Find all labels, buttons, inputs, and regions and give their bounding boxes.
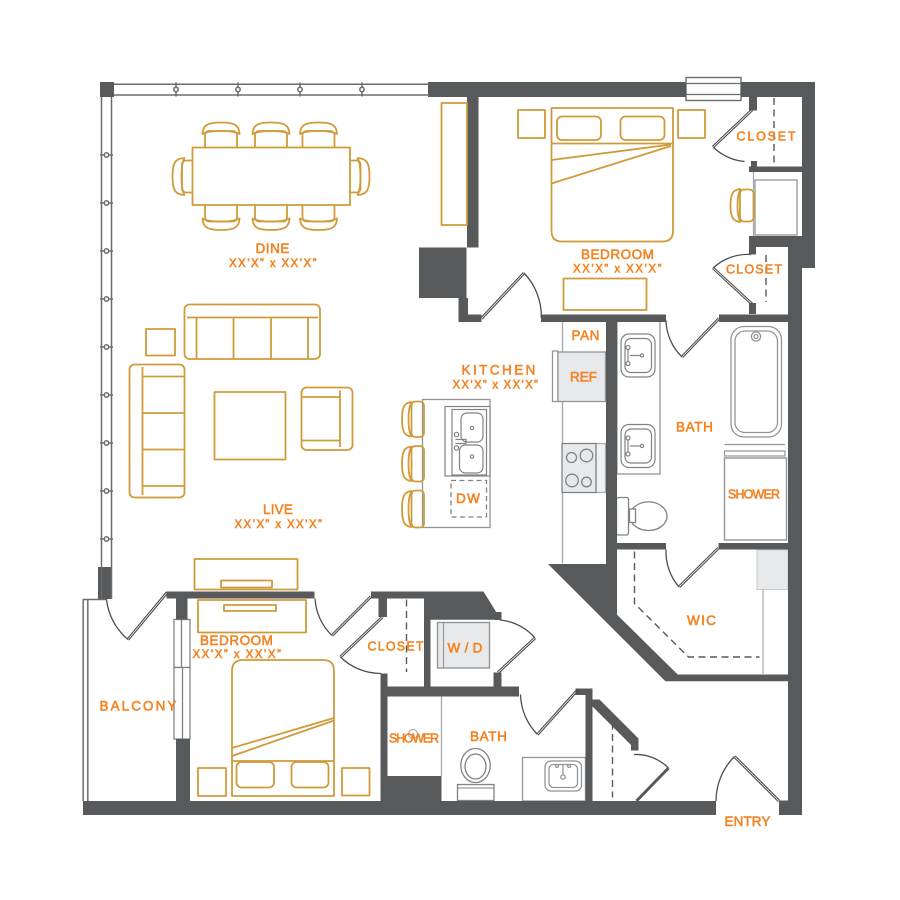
svg-text:BATH: BATH: [470, 729, 508, 744]
svg-text:W/D: W/D: [448, 641, 484, 656]
svg-text:XX’X” x XX’X”: XX’X” x XX’X”: [573, 264, 662, 276]
svg-text:SHOWER: SHOWER: [389, 732, 440, 746]
svg-text:REF: REF: [570, 370, 598, 385]
svg-text:BEDROOM: BEDROOM: [200, 633, 274, 648]
svg-text:WIC: WIC: [687, 613, 717, 628]
svg-text:DINE: DINE: [256, 241, 291, 256]
svg-text:BATH: BATH: [676, 420, 714, 435]
svg-text:CLOSET: CLOSET: [726, 263, 783, 277]
svg-text:DW: DW: [456, 491, 481, 506]
svg-text:BALCONY: BALCONY: [100, 699, 178, 714]
svg-text:LIVE: LIVE: [263, 502, 294, 517]
svg-text:KITCHEN: KITCHEN: [462, 363, 537, 378]
svg-text:PAN: PAN: [572, 328, 601, 343]
svg-text:XX’X” x XX’X”: XX’X” x XX’X”: [193, 649, 282, 661]
svg-text:XX’X” x XX’X”: XX’X” x XX’X”: [229, 258, 317, 270]
svg-text:ENTRY: ENTRY: [725, 814, 772, 829]
svg-text:XX’X” x XX’X”: XX’X” x XX’X”: [453, 380, 539, 392]
svg-text:SHOWER: SHOWER: [728, 488, 781, 502]
svg-text:CLOSET: CLOSET: [737, 130, 797, 144]
svg-text:CLOSET: CLOSET: [368, 640, 425, 654]
svg-text:XX’X” x XX’X”: XX’X” x XX’X”: [235, 519, 323, 531]
svg-text:BEDROOM: BEDROOM: [581, 247, 655, 262]
